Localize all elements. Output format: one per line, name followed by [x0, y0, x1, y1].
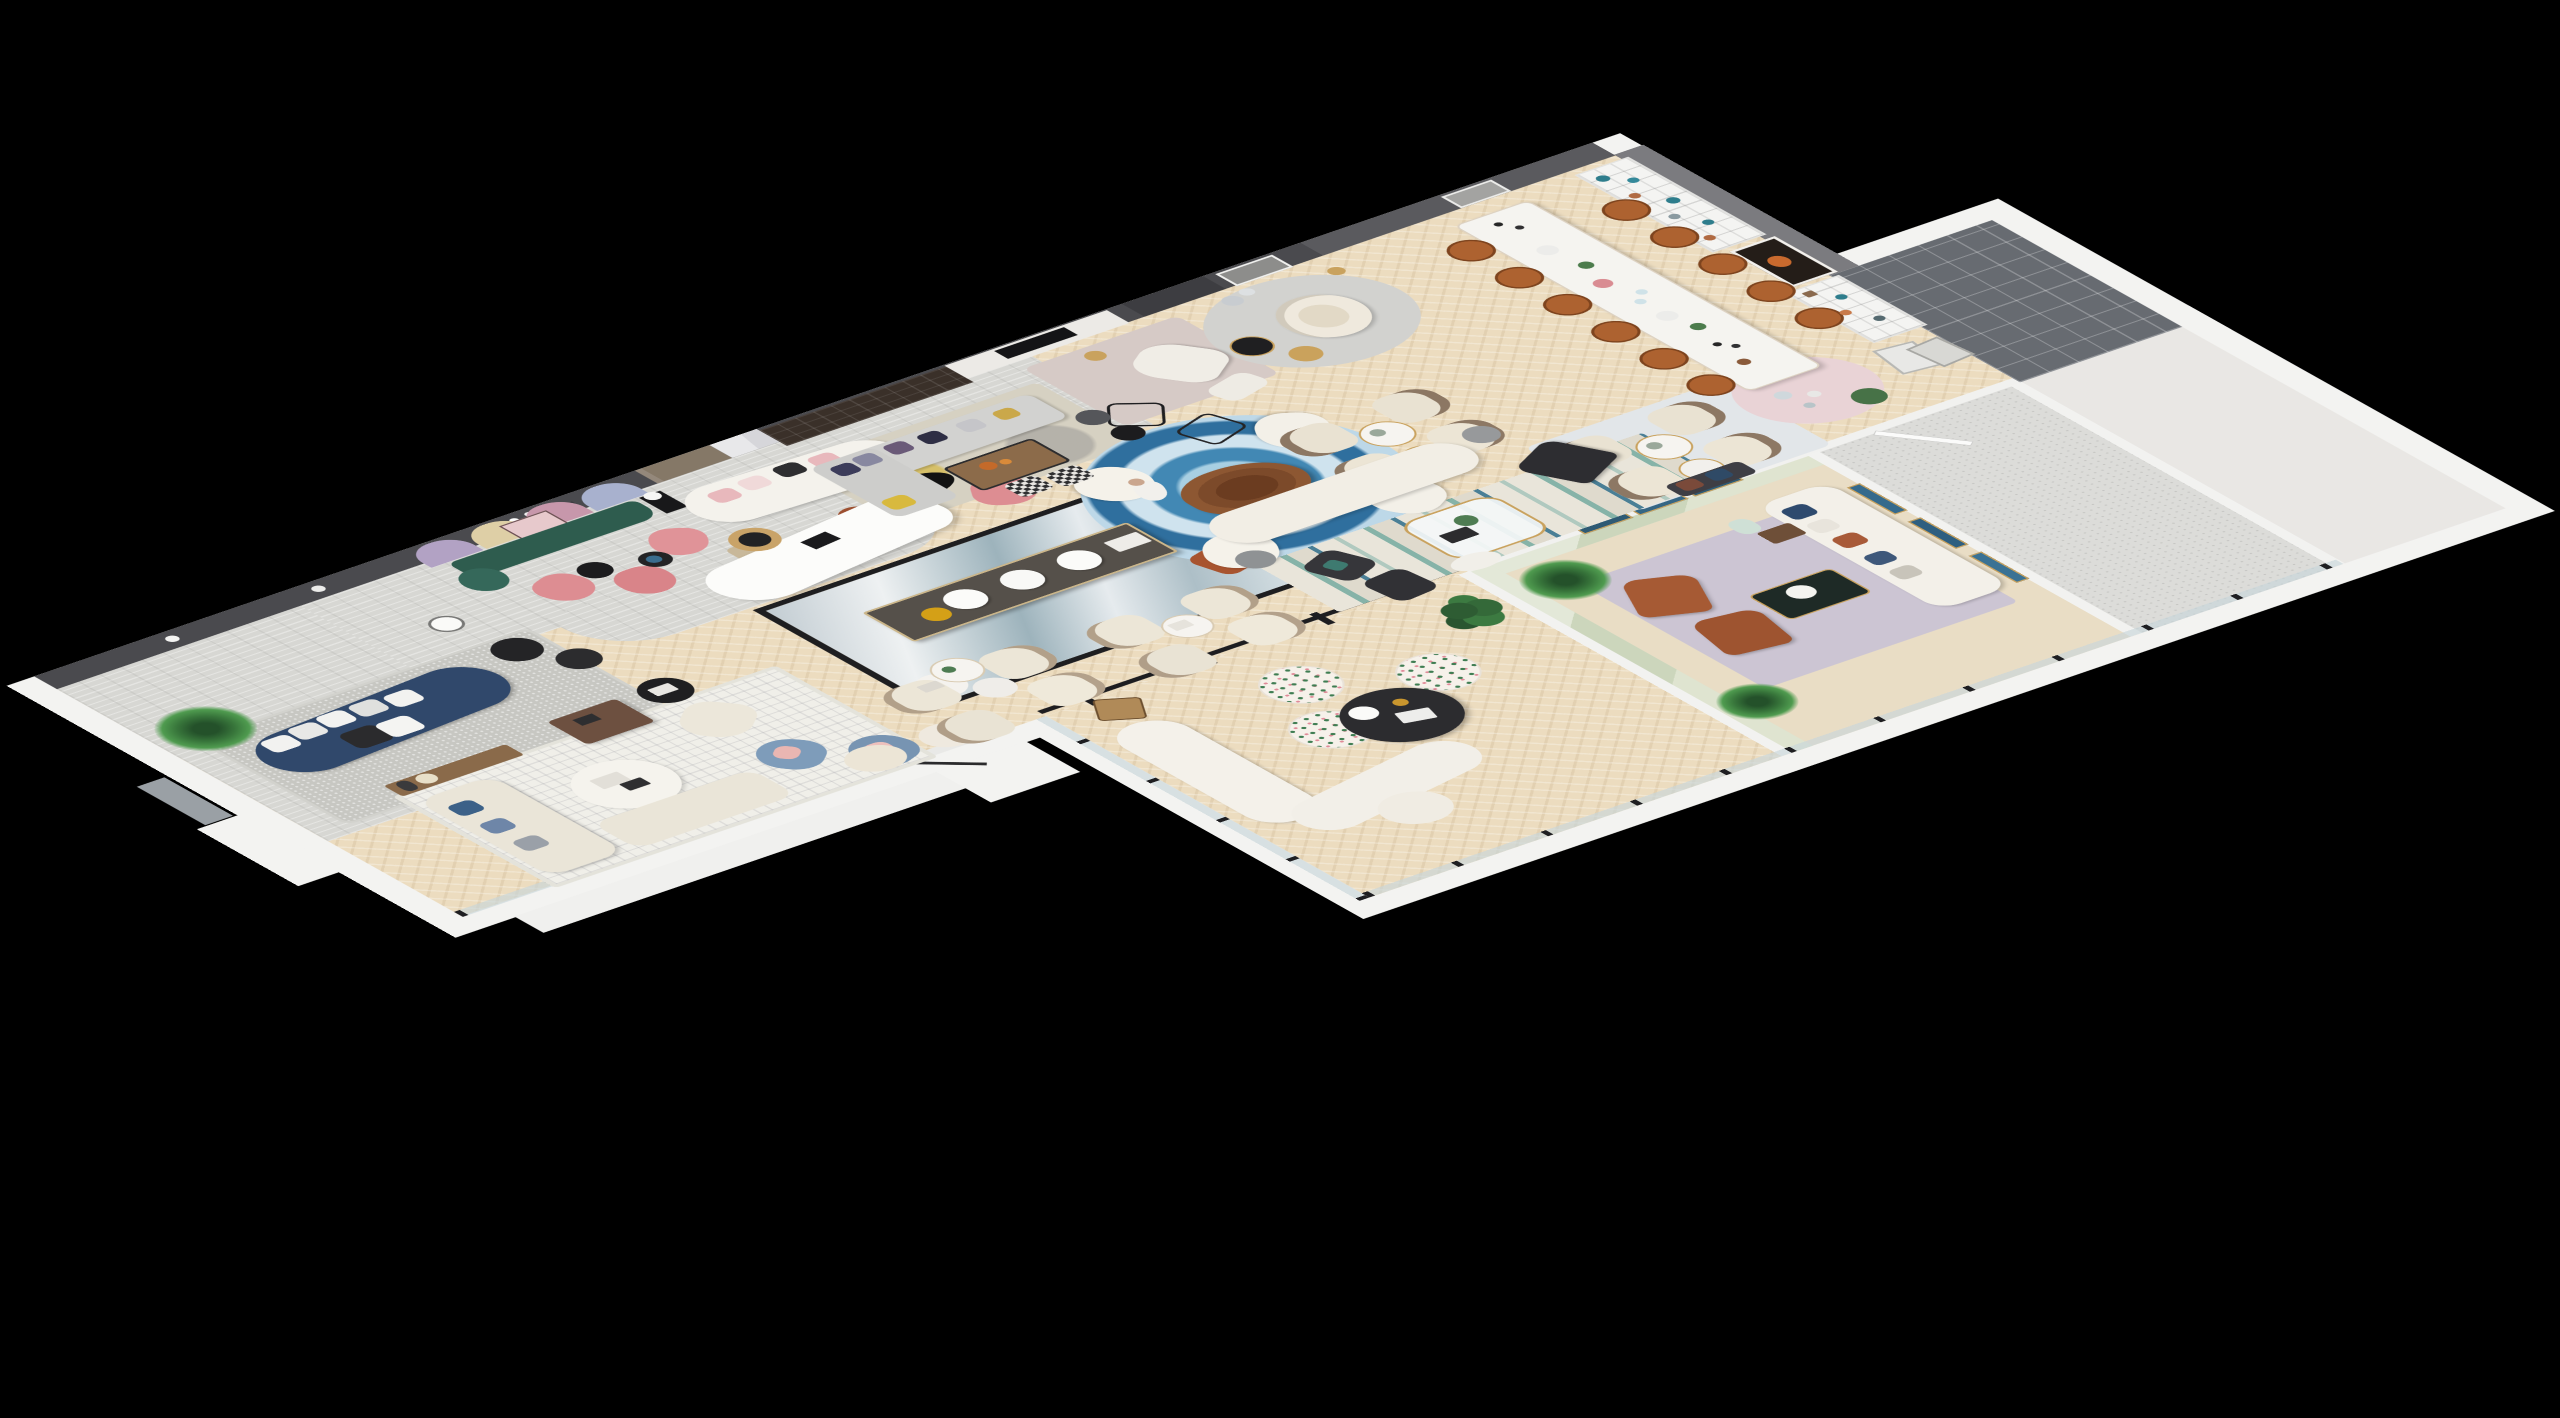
chair-wireframe [1106, 402, 1166, 426]
chair-folding-tan [1092, 697, 1148, 721]
scene-canvas [0, 0, 2560, 1418]
floorplan-3d-render [5, 48, 2560, 1126]
